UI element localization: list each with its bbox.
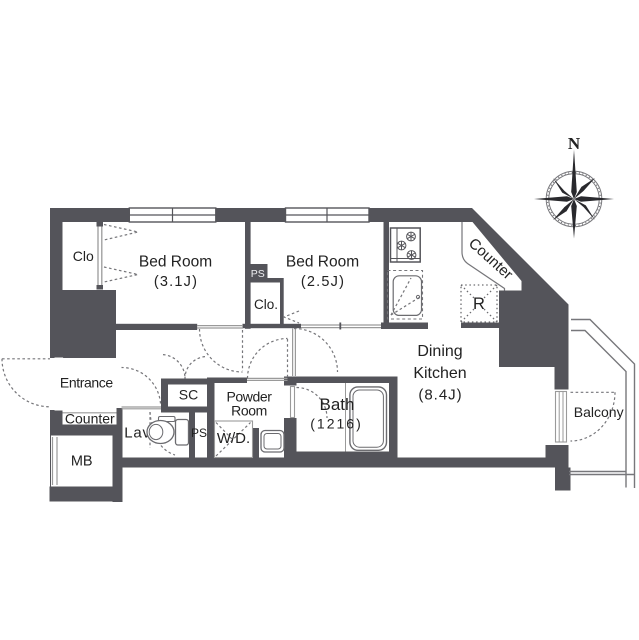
svg-text:Bed Room: Bed Room [286,254,359,271]
svg-text:Clo: Clo [73,248,94,264]
svg-text:SC: SC [179,387,198,403]
svg-text:Room: Room [231,403,267,419]
svg-text:(3.1J): (3.1J) [154,274,198,290]
svg-text:Entrance: Entrance [60,375,113,391]
svg-text:Balcony: Balcony [574,404,624,420]
svg-text:Bed Room: Bed Room [139,254,212,271]
svg-text:Dining: Dining [417,343,462,360]
svg-text:PS: PS [191,426,207,440]
svg-text:N: N [568,134,581,153]
svg-text:Kitchen: Kitchen [413,365,466,382]
svg-text:(8.4J): (8.4J) [418,387,462,404]
svg-text:Bath: Bath [320,395,355,414]
svg-text:(2.5J): (2.5J) [301,274,345,290]
svg-text:R: R [473,295,485,313]
svg-text:(1216): (1216) [310,416,362,432]
svg-text:W/D.: W/D. [217,430,250,447]
svg-text:Counter: Counter [65,411,115,427]
svg-text:MB: MB [71,454,93,470]
svg-text:Clo.: Clo. [254,297,278,312]
